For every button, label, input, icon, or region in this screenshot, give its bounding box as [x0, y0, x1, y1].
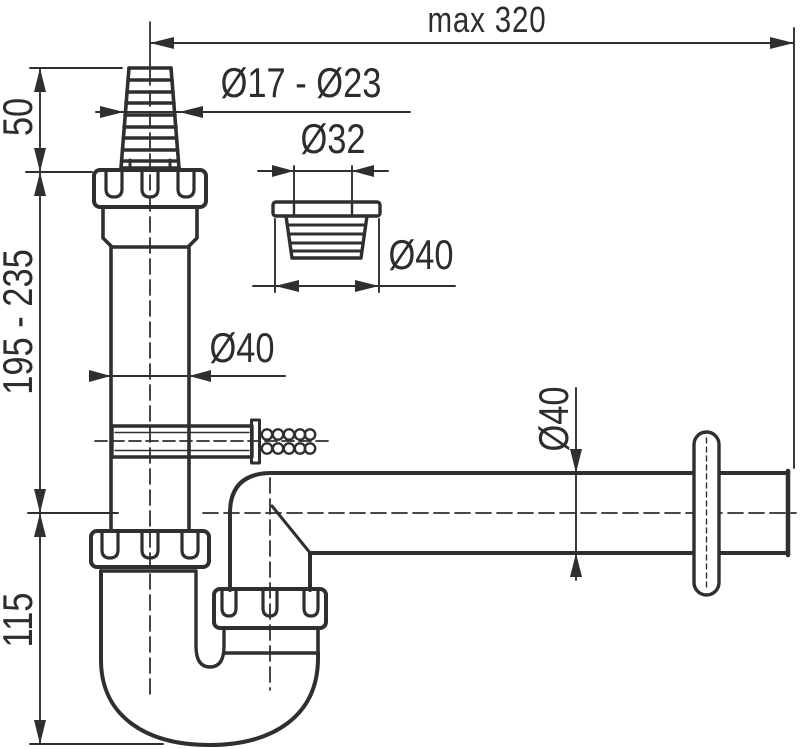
dim-label-reducer-inner: Ø32	[292, 120, 374, 158]
dim-label-outlet-diameter: Ø40	[535, 378, 573, 460]
dim-label-overall-width: max 320	[413, 1, 561, 39]
wall-flange	[694, 432, 719, 595]
dim-label-cone-height: 50	[0, 84, 37, 150]
dimension-arrowheads	[34, 37, 794, 744]
dim-label-height-range: 195 - 235	[0, 240, 37, 404]
siphon-line-drawing	[0, 0, 800, 749]
trap-bowl	[101, 571, 318, 745]
dim-label-hose-range: Ø17 - Ø23	[211, 64, 391, 102]
dimension-lines	[26, 28, 794, 744]
outlet-elbow	[230, 473, 693, 590]
dim-label-reducer-outer: Ø40	[380, 236, 462, 274]
dim-label-trap-depth: 115	[0, 575, 37, 665]
reducer-gasket	[273, 202, 380, 258]
technical-drawing-canvas: max 320 Ø17 - Ø23 Ø32 Ø40 Ø40 Ø40 50 195…	[0, 0, 800, 749]
dim-label-pipe-diameter: Ø40	[201, 329, 283, 367]
